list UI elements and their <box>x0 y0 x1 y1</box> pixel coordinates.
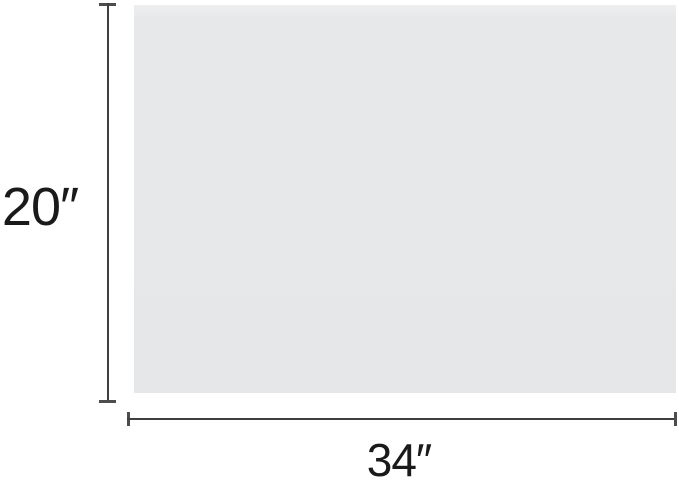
dimension-diagram: 20″ 34″ <box>0 0 679 483</box>
product-panel <box>134 5 676 393</box>
width-dimension-label: 34″ <box>324 437 474 483</box>
height-dimension-cap-bottom <box>99 400 116 403</box>
width-dimension-line <box>127 412 677 426</box>
height-dimension-label: 20″ <box>0 180 83 234</box>
width-dimension-cap-right <box>674 412 677 426</box>
height-dimension-line <box>99 3 116 403</box>
width-dimension-stem <box>127 418 677 420</box>
height-dimension-stem <box>107 3 109 403</box>
